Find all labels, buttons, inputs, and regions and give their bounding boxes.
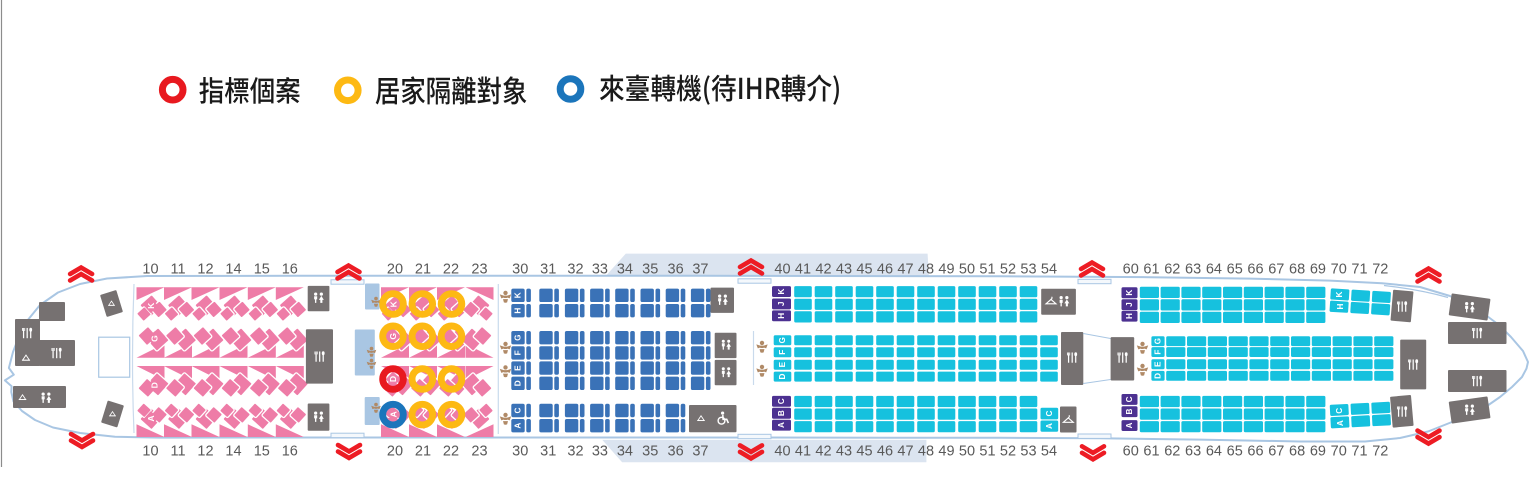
svg-text:69: 69 [1310, 444, 1326, 460]
svg-text:64: 64 [1206, 262, 1222, 278]
svg-text:51: 51 [979, 444, 995, 460]
svg-text:65: 65 [1227, 262, 1243, 278]
svg-text:A: A [514, 423, 523, 429]
svg-text:D: D [778, 374, 787, 380]
svg-text:72: 72 [1372, 262, 1388, 278]
svg-text:11: 11 [170, 262, 185, 278]
svg-text:B: B [777, 410, 786, 416]
svg-text:A: A [1336, 420, 1345, 426]
svg-text:53: 53 [1020, 262, 1036, 278]
svg-text:41: 41 [795, 444, 811, 460]
svg-text:22: 22 [443, 262, 459, 278]
svg-text:52: 52 [1000, 262, 1016, 278]
svg-text:65: 65 [1227, 444, 1243, 460]
svg-text:70: 70 [1331, 262, 1347, 278]
svg-text:H: H [1125, 313, 1134, 319]
svg-text:43: 43 [836, 444, 852, 460]
svg-text:60: 60 [1123, 262, 1139, 278]
svg-text:35: 35 [642, 444, 658, 460]
svg-text:32: 32 [567, 262, 583, 278]
svg-text:H: H [514, 308, 523, 314]
svg-text:A: A [389, 411, 399, 417]
svg-text:F: F [514, 350, 523, 355]
svg-text:53: 53 [1020, 444, 1036, 460]
svg-text:G: G [150, 335, 160, 342]
svg-text:61: 61 [1143, 262, 1159, 278]
svg-text:62: 62 [1164, 444, 1180, 460]
svg-text:D: D [150, 382, 160, 388]
svg-text:J: J [777, 302, 786, 307]
svg-text:35: 35 [642, 262, 658, 278]
svg-text:G: G [388, 333, 398, 340]
svg-text:43: 43 [836, 262, 852, 278]
svg-text:C: C [1335, 408, 1344, 414]
svg-text:B: B [1125, 409, 1134, 415]
svg-text:G: G [778, 337, 787, 343]
svg-text:K: K [1125, 290, 1134, 296]
svg-text:40: 40 [774, 444, 790, 460]
svg-text:E: E [778, 361, 787, 367]
svg-text:47: 47 [897, 262, 913, 278]
svg-text:A: A [1125, 422, 1134, 428]
svg-text:72: 72 [1372, 444, 1388, 460]
svg-text:E: E [1154, 361, 1163, 367]
svg-text:36: 36 [668, 444, 684, 460]
svg-text:20: 20 [387, 262, 403, 278]
svg-text:K: K [389, 300, 399, 307]
svg-text:71: 71 [1351, 444, 1367, 460]
svg-text:71: 71 [1351, 262, 1367, 278]
svg-text:68: 68 [1289, 262, 1305, 278]
svg-text:69: 69 [1310, 262, 1326, 278]
svg-text:K: K [146, 302, 156, 309]
svg-text:34: 34 [617, 444, 633, 460]
svg-text:42: 42 [815, 444, 831, 460]
svg-text:J: J [1125, 302, 1134, 307]
svg-text:30: 30 [512, 444, 528, 460]
svg-text:21: 21 [415, 262, 431, 278]
svg-text:20: 20 [387, 444, 403, 460]
svg-text:40: 40 [774, 262, 790, 278]
svg-text:H: H [1336, 304, 1345, 310]
svg-text:K: K [1335, 291, 1344, 297]
svg-text:15: 15 [254, 262, 270, 278]
svg-text:31: 31 [540, 444, 556, 460]
svg-text:52: 52 [1000, 444, 1016, 460]
svg-text:C: C [1125, 396, 1134, 402]
svg-text:10: 10 [142, 444, 158, 460]
svg-text:22: 22 [443, 444, 459, 460]
svg-text:48: 48 [918, 444, 934, 460]
svg-text:C: C [777, 398, 786, 404]
svg-text:D: D [1154, 373, 1163, 379]
svg-text:47: 47 [897, 444, 913, 460]
svg-text:A: A [777, 422, 786, 428]
svg-text:49: 49 [938, 262, 954, 278]
svg-text:54: 54 [1041, 262, 1057, 278]
svg-text:C: C [514, 407, 523, 413]
svg-text:37: 37 [692, 444, 708, 460]
svg-text:A: A [146, 415, 156, 421]
svg-text:30: 30 [512, 262, 528, 278]
svg-text:14: 14 [225, 444, 241, 460]
svg-text:K: K [514, 292, 523, 298]
svg-text:67: 67 [1268, 262, 1284, 278]
svg-text:66: 66 [1247, 444, 1263, 460]
svg-text:63: 63 [1185, 262, 1201, 278]
svg-text:60: 60 [1123, 444, 1139, 460]
svg-text:C: C [1045, 411, 1054, 417]
svg-text:H: H [777, 313, 786, 319]
svg-text:41: 41 [795, 262, 811, 278]
svg-text:54: 54 [1041, 444, 1057, 460]
svg-text:10: 10 [142, 262, 158, 278]
svg-text:F: F [778, 350, 787, 355]
svg-text:50: 50 [959, 262, 975, 278]
svg-text:46: 46 [877, 262, 893, 278]
svg-text:K: K [777, 288, 786, 294]
svg-text:70: 70 [1331, 444, 1347, 460]
svg-text:62: 62 [1164, 262, 1180, 278]
svg-text:37: 37 [692, 262, 708, 278]
svg-text:16: 16 [282, 262, 298, 278]
svg-text:D: D [514, 380, 523, 386]
svg-text:12: 12 [197, 444, 213, 460]
svg-text:11: 11 [170, 444, 185, 460]
svg-text:33: 33 [592, 444, 608, 460]
svg-text:21: 21 [415, 444, 431, 460]
svg-text:32: 32 [567, 444, 583, 460]
svg-text:34: 34 [617, 262, 633, 278]
svg-text:46: 46 [877, 444, 893, 460]
svg-text:15: 15 [254, 444, 270, 460]
svg-text:14: 14 [225, 262, 241, 278]
svg-text:45: 45 [856, 262, 872, 278]
svg-text:23: 23 [471, 444, 487, 460]
svg-text:D: D [388, 376, 398, 382]
svg-text:51: 51 [979, 262, 995, 278]
svg-text:A: A [1045, 423, 1054, 429]
svg-text:F: F [1154, 350, 1163, 355]
svg-text:45: 45 [856, 444, 872, 460]
svg-text:31: 31 [540, 262, 556, 278]
svg-text:50: 50 [959, 444, 975, 460]
svg-text:68: 68 [1289, 444, 1305, 460]
svg-text:16: 16 [282, 444, 298, 460]
svg-text:63: 63 [1185, 444, 1201, 460]
svg-text:67: 67 [1268, 444, 1284, 460]
svg-text:66: 66 [1247, 262, 1263, 278]
svg-text:49: 49 [938, 444, 954, 460]
svg-text:G: G [514, 335, 523, 341]
svg-text:12: 12 [197, 262, 213, 278]
svg-text:42: 42 [815, 262, 831, 278]
svg-text:G: G [1154, 338, 1163, 344]
svg-text:36: 36 [668, 262, 684, 278]
svg-text:33: 33 [592, 262, 608, 278]
svg-text:61: 61 [1143, 444, 1159, 460]
svg-text:64: 64 [1206, 444, 1222, 460]
svg-text:48: 48 [918, 262, 934, 278]
svg-text:23: 23 [471, 262, 487, 278]
svg-text:E: E [514, 365, 523, 371]
